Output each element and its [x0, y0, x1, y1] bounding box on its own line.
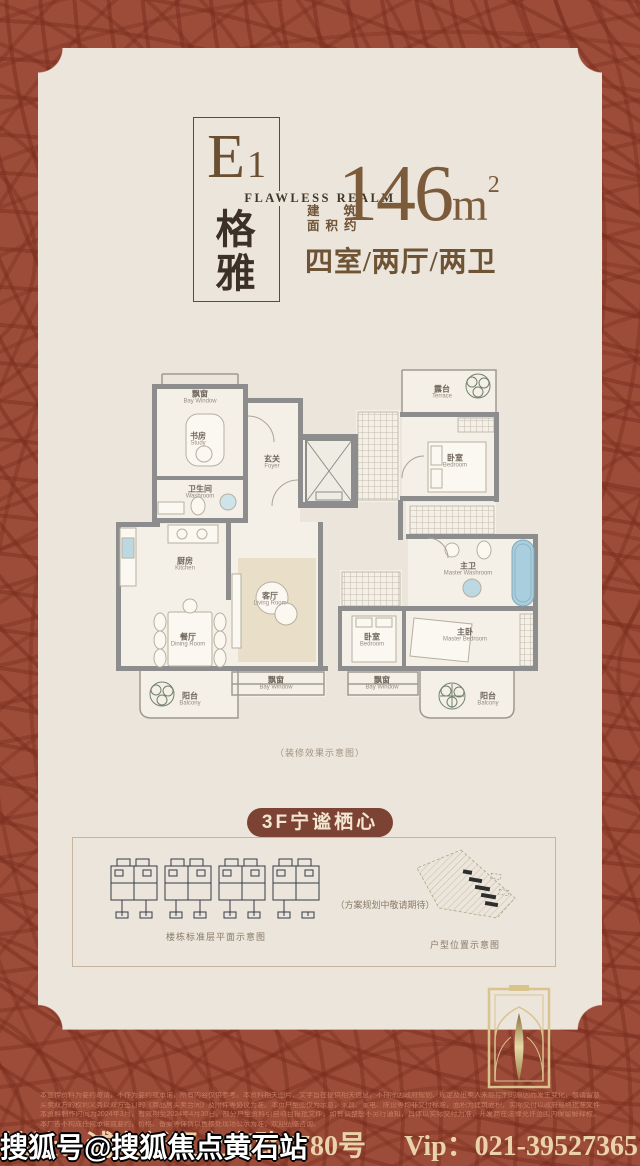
elevator-core [306, 440, 352, 502]
content-card: E1 FLAWLESS REALM 格 雅 建筑 面积约 146m2 四室/两厅… [38, 48, 602, 1030]
disclaimer-line: 买卖双方的权利义务以双方签订的《商品房买卖合同》及附件等协议为准。本页户型图仅为… [40, 1102, 600, 1111]
unit-code: E1 [194, 124, 279, 190]
floorplan-caption: （装修效果示意图） [38, 746, 602, 759]
unit-name-char-2: 雅 [193, 252, 278, 296]
floorplan: 飘窗Bay Window 书房Study 玄关Foyer 卫生间Washroom… [80, 360, 560, 760]
building-floorplate-diagram [107, 854, 325, 924]
lower-section: 楼栋标准层平面示意图 （方案规划中敬请期待） [72, 837, 556, 967]
unit-name-char-1: 格 [193, 208, 278, 252]
floorplan-svg [80, 360, 560, 760]
siteplan-caption: 户型位置示意图 [411, 938, 519, 951]
area-unit: m [452, 179, 488, 230]
floor-badge: 3F宁谧栖心 [247, 808, 393, 837]
poster: E1 FLAWLESS REALM 格 雅 建筑 面积约 146m2 四室/两厅… [0, 0, 640, 1166]
siteplan-diagram [411, 846, 519, 922]
room-layout-text: 四室/两厅/两卫 [305, 240, 545, 280]
watermark: 搜狐号@搜狐焦点黄石站 [0, 1126, 307, 1166]
vip-phone: Vip：021-39527365 [404, 1124, 638, 1164]
area-superscript: 2 [488, 172, 500, 198]
disclaimer-line: 本宣传资料为要约邀请，不作为要约或承诺，所有内容仅供参考。本资料相关图片、文字旨… [40, 1092, 600, 1101]
area-value: 146m2 [338, 154, 500, 234]
disclaimer-line: 本资料制作时间为2024年3月，有效期至2024年4月30日。部分户型资料引自项… [40, 1111, 600, 1120]
unit-code-sub: 1 [247, 144, 266, 186]
unit-name-cn: 格 雅 [193, 208, 278, 296]
building-diagram-caption: 楼栋标准层平面示意图 [107, 930, 325, 943]
unit-code-main: E [207, 123, 245, 191]
area-number: 146 [338, 150, 452, 238]
gold-emblem-icon [483, 985, 555, 1091]
